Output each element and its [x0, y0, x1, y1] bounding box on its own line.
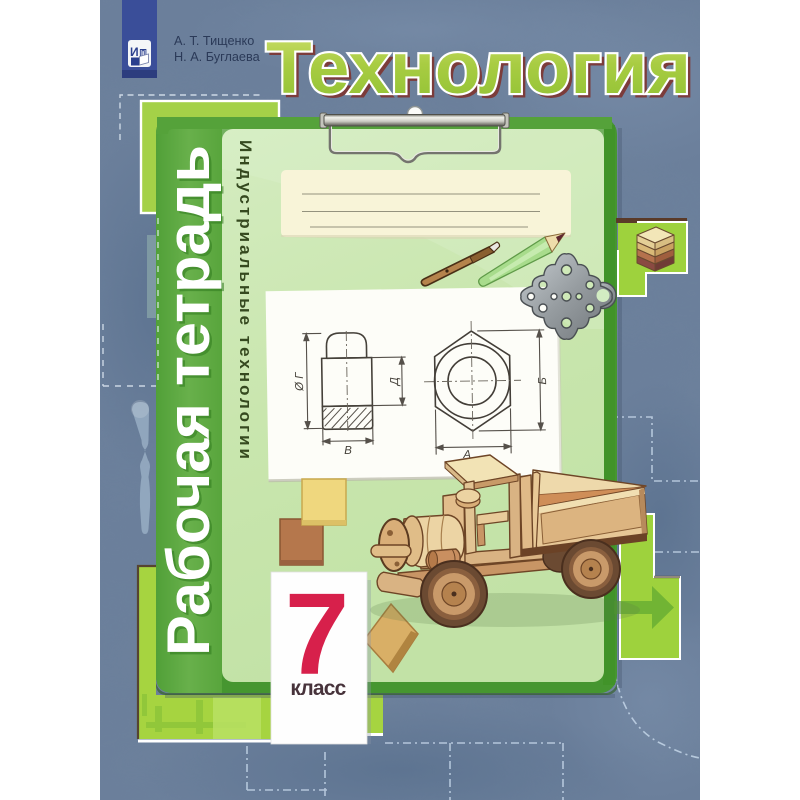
- svg-text:Б: Б: [537, 377, 549, 385]
- svg-text:И: И: [130, 45, 139, 59]
- svg-text:Индустриальные технологии: Индустриальные технологии: [236, 140, 255, 462]
- svg-text:Н. А. Буглаева: Н. А. Буглаева: [174, 50, 261, 64]
- svg-text:класс: класс: [290, 677, 346, 700]
- svg-text:А. Т. Тищенко: А. Т. Тищенко: [174, 34, 254, 48]
- svg-text:Рабочая тетрадь: Рабочая тетрадь: [155, 145, 222, 656]
- svg-text:В: В: [344, 445, 352, 457]
- svg-text:Технология: Технология: [266, 28, 691, 109]
- svg-text:Д: Д: [389, 377, 401, 387]
- svg-text:Ø Г: Ø Г: [294, 372, 306, 392]
